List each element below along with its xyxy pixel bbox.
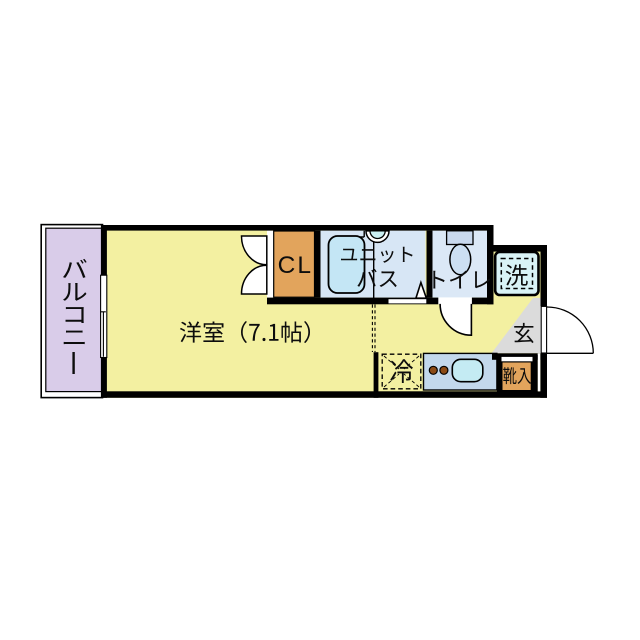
svg-text:CL: CL bbox=[278, 252, 313, 279]
